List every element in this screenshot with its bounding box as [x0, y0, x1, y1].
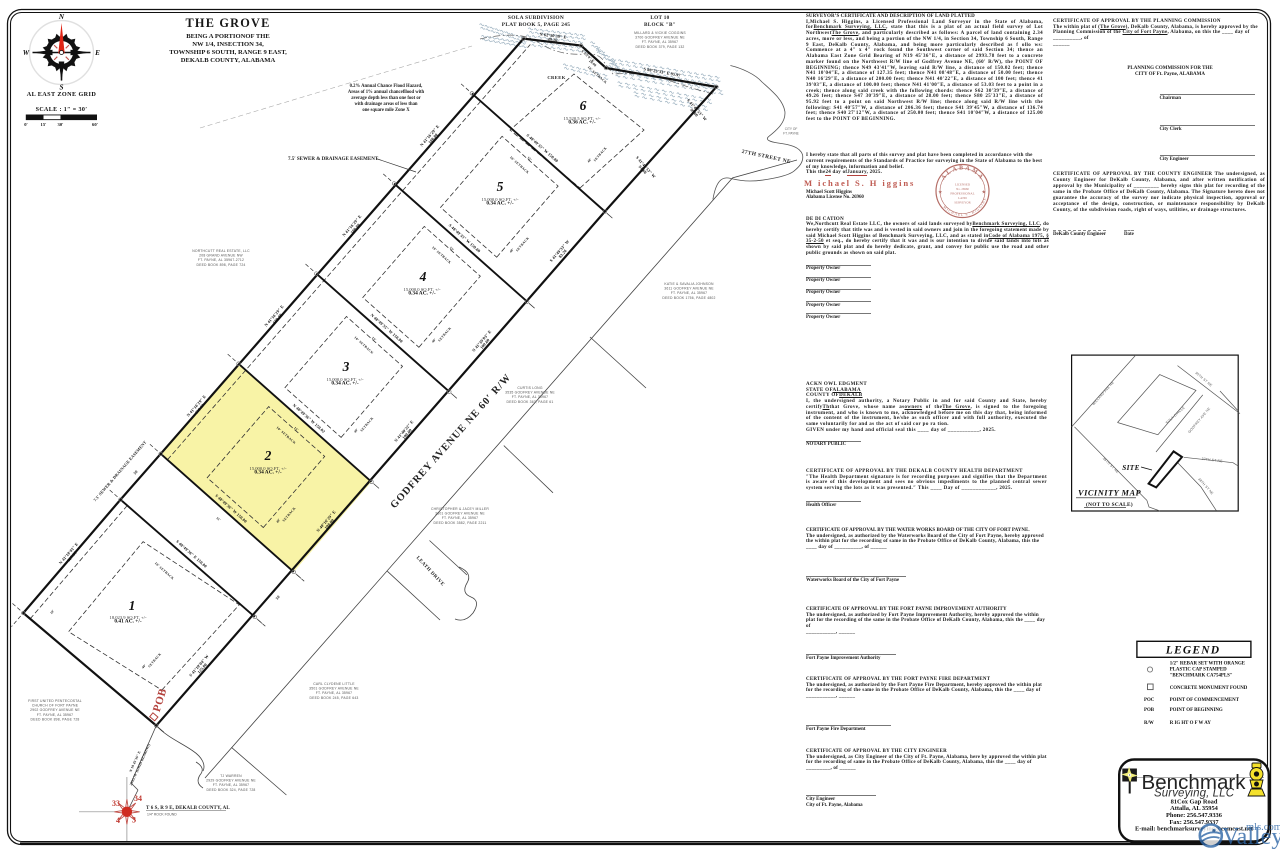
svg-text:R/W: R/W: [1144, 721, 1154, 726]
svg-text:15′: 15′: [526, 156, 532, 162]
svg-text:40′: 40′: [141, 663, 147, 669]
svg-text:0.34 AC. +/-: 0.34 AC. +/-: [408, 290, 436, 296]
svg-text:CHRISTOPHER & JACEY MILLER: CHRISTOPHER & JACEY MILLER: [431, 507, 489, 511]
svg-text:3501 GODFREY AVENUE NE: 3501 GODFREY AVENUE NE: [309, 687, 359, 691]
svg-text:LEGEND: LEGEND: [1165, 645, 1220, 657]
svg-text:3700 GODFREY AVENUE NE: 3700 GODFREY AVENUE NE: [635, 36, 685, 40]
svg-text:DEED BOOK 324, PAGE 728: DEED BOOK 324, PAGE 728: [206, 788, 255, 792]
svg-text:W: W: [23, 49, 30, 57]
svg-text:SETBACK: SETBACK: [359, 416, 374, 433]
svg-text:AL EAST ZONE GRID: AL EAST ZONE GRID: [27, 91, 97, 98]
svg-text:DEED BOOK 3582, PAGE 2211: DEED BOOK 3582, PAGE 2211: [434, 521, 487, 525]
svg-text:0′: 0′: [24, 122, 28, 127]
svg-text:POINT OF COMMENCEMENT: POINT OF COMMENCEMENT: [1170, 698, 1240, 703]
svg-text:FT. PAYNE, AL 35967: FT. PAYNE, AL 35967: [37, 713, 74, 717]
svg-text:33: 33: [112, 799, 120, 808]
svg-text:SETBACK: SETBACK: [593, 146, 608, 163]
svg-text:30′: 30′: [58, 122, 64, 127]
svg-text:POB: POB: [151, 687, 170, 714]
svg-text:40′: 40′: [353, 428, 359, 434]
svg-text:1: 1: [129, 598, 136, 613]
svg-text:SCALE : 1″ = 30′: SCALE : 1″ = 30′: [36, 107, 88, 113]
svg-text:208 GRAND AVENUE NW: 208 GRAND AVENUE NW: [199, 254, 243, 258]
svg-text:SETBACK: SETBACK: [437, 326, 452, 343]
svg-text:PLAT BOOK 5, PAGE 245: PLAT BOOK 5, PAGE 245: [502, 22, 570, 28]
svg-text:15′: 15′: [41, 122, 47, 127]
svg-text:SURVEYOR: SURVEYOR: [954, 201, 971, 205]
svg-text:POC: POC: [1144, 698, 1155, 703]
svg-text:SETBACK: SETBACK: [147, 652, 162, 669]
svg-text:TJ WARREN: TJ WARREN: [220, 774, 242, 778]
svg-text:LEATH DRIVE: LEATH DRIVE: [415, 556, 445, 588]
svg-text:34: 34: [134, 794, 142, 803]
svg-text:S 48°49′36″ E 150.00: S 48°49′36″ E 150.00: [175, 539, 208, 569]
svg-text:0.41 AC. +/-: 0.41 AC. +/-: [114, 618, 142, 624]
svg-text:2929 GODFREY AVENUE NE: 2929 GODFREY AVENUE NE: [206, 779, 256, 783]
svg-text:4: 4: [419, 269, 427, 284]
svg-text:0.34 AC. +/-: 0.34 AC. +/-: [254, 469, 282, 475]
svg-text:BLOCK ″B″: BLOCK ″B″: [644, 22, 676, 28]
svg-text:2902 GODFREY AVENUE NE: 2902 GODFREY AVENUE NE: [30, 708, 80, 712]
svg-text:″BENCHMARK CA754PLS″: ″BENCHMARK CA754PLS″: [1170, 674, 1233, 679]
svg-text:SETBACK: SETBACK: [515, 236, 530, 253]
svg-text:FT. PAYNE: FT. PAYNE: [783, 132, 799, 136]
svg-text:10′: 10′: [49, 609, 55, 615]
svg-text:FT. PAYNE, AL 35967: FT. PAYNE, AL 35967: [642, 40, 679, 44]
svg-text:DEED BOOK 898, PAGE 724: DEED BOOK 898, PAGE 724: [196, 263, 245, 267]
svg-text:E: E: [94, 49, 100, 57]
svg-text:FT. PAYNE, AL 35967: FT. PAYNE, AL 35967: [213, 783, 250, 787]
svg-text:7.5′ SEWER & DRAINAGE EASEMENT: 7.5′ SEWER & DRAINAGE EASEMENT: [92, 440, 147, 503]
svg-text:MILLARD & VICKIE COGGINS: MILLARD & VICKIE COGGINS: [634, 31, 686, 35]
svg-text:FT. PAYNE, AL 35967: FT. PAYNE, AL 35967: [442, 516, 479, 520]
svg-text:40′: 40′: [509, 247, 515, 253]
svg-text:10′ SETBACK: 10′ SETBACK: [154, 561, 175, 580]
svg-text:15′: 15′: [371, 336, 377, 342]
svg-text:3: 3: [342, 359, 350, 374]
svg-text:6: 6: [580, 98, 587, 113]
svg-text:7.5′ SEWER & DRAINAGE EASEMENT: 7.5′ SEWER & DRAINAGE EASEMENT: [288, 157, 379, 162]
svg-text:FIRST UNITED PENTECOSTAL: FIRST UNITED PENTECOSTAL: [28, 699, 82, 703]
svg-text:15′: 15′: [449, 246, 455, 252]
svg-text:0.36 AC. +/-: 0.36 AC. +/-: [568, 119, 596, 125]
svg-text:CONCRETE MONUMENT FOUND: CONCRETE MONUMENT FOUND: [1170, 686, 1248, 691]
svg-text:SITE: SITE: [1122, 464, 1140, 472]
svg-text:T 6 S, R 9 E, DEKALB COUNTY, A: T 6 S, R 9 E, DEKALB COUNTY, AL: [146, 806, 230, 811]
svg-text:CARL CLYDENE LITTLE: CARL CLYDENE LITTLE: [313, 682, 355, 686]
svg-text:N: N: [58, 13, 65, 21]
svg-text:NORTHCUTT REAL ESTATE, LLC: NORTHCUTT REAL ESTATE, LLC: [192, 249, 250, 253]
svg-text:3535 GODFREY AVENUE NE: 3535 GODFREY AVENUE NE: [505, 391, 555, 395]
svg-text:PLASTIC CAP STAMPED: PLASTIC CAP STAMPED: [1170, 668, 1227, 673]
svg-text:60′: 60′: [92, 122, 98, 127]
svg-text:3: 3: [132, 816, 136, 825]
svg-text:DEED BOOK 379, PAGE 132: DEED BOOK 379, PAGE 132: [635, 45, 684, 49]
svg-text:50: 50: [274, 594, 281, 600]
svg-text:40′: 40′: [587, 157, 593, 163]
svg-text:15′: 15′: [215, 516, 221, 522]
svg-text:5: 5: [497, 179, 504, 194]
svg-text:LICENSED: LICENSED: [955, 183, 971, 187]
svg-text:CURTIS LONG: CURTIS LONG: [517, 386, 542, 390]
svg-text:3601 GODFREY AVENUE NE: 3601 GODFREY AVENUE NE: [435, 512, 485, 516]
svg-text:DEED BOOK 367, PAGE 61: DEED BOOK 367, PAGE 61: [507, 400, 554, 404]
svg-text:DEED BOOK 898, PAGE 728: DEED BOOK 898, PAGE 728: [30, 717, 79, 721]
svg-text:VICINITY MAP: VICINITY MAP: [1078, 489, 1142, 498]
svg-text:FT. PAYNE, AL 35967: FT. PAYNE, AL 35967: [671, 291, 708, 295]
svg-text:LAND: LAND: [958, 196, 967, 200]
svg-text:LOT 10: LOT 10: [650, 15, 669, 21]
svg-text:0.34 AC. +/-: 0.34 AC. +/-: [486, 200, 514, 206]
svg-text:1/4″ ROCK FOUND: 1/4″ ROCK FOUND: [147, 813, 177, 817]
svg-text:3611 GODFREY AVENUE NE: 3611 GODFREY AVENUE NE: [664, 287, 714, 291]
svg-text:No. 26960: No. 26960: [956, 187, 969, 191]
svg-text:CHURCH OF FORT PAYNE: CHURCH OF FORT PAYNE: [32, 704, 79, 708]
svg-text:DEED BOOK 245, PAGE 643: DEED BOOK 245, PAGE 643: [309, 696, 358, 700]
svg-text:DEED BOOK 1756, PAGE 4802: DEED BOOK 1756, PAGE 4802: [662, 296, 715, 300]
svg-text:FT. PAYNE, AL 35967: FT. PAYNE, AL 35967: [512, 395, 549, 399]
svg-text:KATIE & SAVALIA JOHNSON: KATIE & SAVALIA JOHNSON: [664, 282, 714, 286]
svg-text:★: ★: [982, 190, 987, 196]
svg-text:POINT OF BEGINNING: POINT OF BEGINNING: [1170, 708, 1223, 713]
svg-text:SOLA SUBDIVISION: SOLA SUBDIVISION: [508, 15, 564, 21]
svg-text:1/2″ REBAR SET WITH ORANGE: 1/2″ REBAR SET WITH ORANGE: [1170, 662, 1246, 667]
svg-text:POB: POB: [1144, 708, 1155, 713]
svg-text:CREEK: CREEK: [547, 75, 565, 80]
svg-text:PROFESSIONAL: PROFESSIONAL: [950, 192, 974, 196]
svg-text:FT. PAYNE, AL 35967-2712: FT. PAYNE, AL 35967-2712: [198, 258, 244, 262]
svg-text:0.34 AC. +/-: 0.34 AC. +/-: [331, 380, 359, 386]
svg-text:50: 50: [132, 469, 139, 475]
svg-text:4: 4: [116, 816, 120, 825]
svg-text:mls.com: mls.com: [1246, 822, 1280, 833]
svg-text:2: 2: [264, 448, 272, 463]
svg-text:FT. PAYNE, AL 35967: FT. PAYNE, AL 35967: [316, 691, 353, 695]
svg-text:S 41°49′33″ W: S 41°49′33″ W: [548, 238, 570, 263]
svg-text:(NOT TO SCALE): (NOT TO SCALE): [1086, 501, 1133, 508]
svg-text:★: ★: [938, 190, 943, 196]
svg-text:R IG HT O F W AY: R IG HT O F W AY: [1170, 721, 1212, 726]
svg-text:40′: 40′: [431, 338, 437, 344]
svg-text:27TH STREET NE: 27TH STREET NE: [741, 149, 791, 165]
svg-text:CITY OF: CITY OF: [785, 127, 798, 131]
